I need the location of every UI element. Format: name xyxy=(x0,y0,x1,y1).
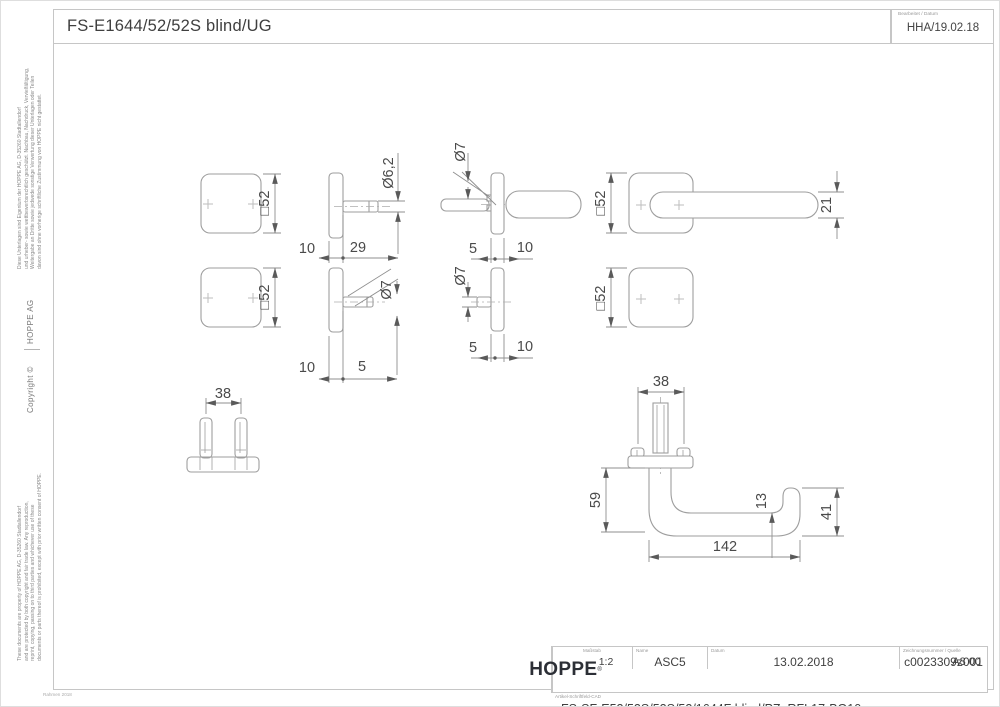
copyright-note: Copyright © xyxy=(26,366,35,413)
title-bar: FS-E1644/52/52S blind/UG xyxy=(53,9,891,44)
article-cell: Artikel-Schriftfeld-CAD FS-SF-E52/52S/52… xyxy=(552,692,899,693)
page-title: FS-E1644/52/52S blind/UG xyxy=(53,17,272,36)
name-label: Name xyxy=(636,648,648,653)
edited-date-box: Bearbeitet / Datum HHA/19.02.18 xyxy=(891,9,994,44)
divider xyxy=(24,349,40,350)
date-value: 13.02.2018 xyxy=(708,655,899,669)
name-cell: Name ASC5 xyxy=(632,647,707,669)
article-value: FS-SF-E52/52S/52S/52/1644F blind/PZ; RFL… xyxy=(561,702,861,707)
legal-notice-en: These documents are property of HOPPE AG… xyxy=(17,473,43,661)
date-cell: Datum 13.02.2018 xyxy=(707,647,899,669)
name-value: ASC5 xyxy=(633,655,707,669)
legal-notice-de: Diese Unterlagen sind Eigentum der HOPPE… xyxy=(17,68,43,269)
drawing-number-label: Zeichnungsnummer / Quelle xyxy=(903,648,961,653)
frame-version-note: Rahmen 2018 xyxy=(43,692,72,697)
brand-logo-text: HOPPE xyxy=(529,659,597,681)
scale-label: Maßstab xyxy=(583,648,601,653)
company-name: HOPPE AG xyxy=(26,299,35,344)
brand-logo: HOPPE® xyxy=(552,647,580,692)
date-label: Datum xyxy=(711,648,725,653)
drawing-frame xyxy=(53,9,994,690)
article-label: Artikel-Schriftfeld-CAD xyxy=(555,694,601,699)
drawing-sheet: FS-E1644/52/52S blind/UG Bearbeitet / Da… xyxy=(0,0,1000,707)
edited-date-label: Bearbeitet / Datum xyxy=(898,12,938,17)
drawing-number-cell: Zeichnungsnummer / Quelle c0023309z001 A… xyxy=(899,647,987,669)
sheet-format: A3 00 xyxy=(952,656,981,668)
edited-date-value: HHA/19.02.18 xyxy=(892,22,994,34)
title-block: Maßstab 1:2 Name ASC5 Datum 13.02.2018 Z… xyxy=(551,646,988,693)
